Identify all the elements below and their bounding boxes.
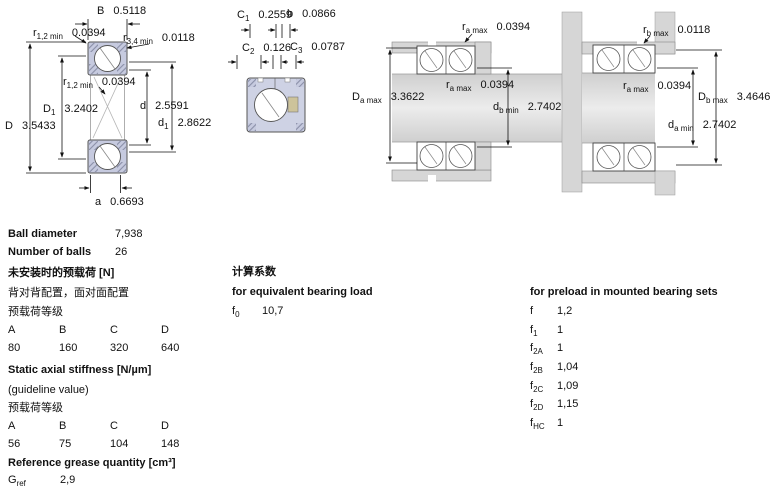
- class-d: D: [161, 420, 212, 433]
- dim-sub: a max: [360, 96, 382, 105]
- dim-val: 2.8622: [178, 117, 212, 129]
- ball-diameter-row: Ball diameter7,938: [8, 228, 143, 241]
- factor-row-f1: f11: [530, 324, 563, 340]
- dim-val: 0.5118: [113, 5, 146, 17]
- class-c: C: [110, 324, 161, 337]
- preload-c: 320: [110, 342, 161, 355]
- dim-val: 0.0394: [102, 76, 136, 88]
- preload-d: 640: [161, 342, 212, 355]
- class-c: C: [110, 420, 161, 433]
- stiffness-d: 148: [161, 438, 212, 451]
- dim-label-C1: C10.2559: [237, 9, 292, 25]
- dim-label-r34: r3,4 min0.0118: [123, 32, 195, 48]
- dim-label-r12-top: r1,2 min0.0394: [33, 27, 106, 43]
- dim-sub: a max: [450, 84, 472, 93]
- dim-sym: d: [140, 100, 146, 112]
- class-a: A: [8, 420, 59, 433]
- dim-val: 0.0118: [677, 24, 710, 36]
- class-b: B: [59, 420, 110, 433]
- dim-sym: C: [242, 42, 250, 54]
- f0-row: f010,7: [232, 305, 283, 321]
- factor-row-f: f1,2: [530, 305, 572, 321]
- dim-val: 3.5433: [22, 120, 56, 132]
- f0-value: 10,7: [262, 305, 283, 317]
- factor-value: 1,09: [557, 380, 578, 392]
- factor-value: 1: [557, 417, 563, 429]
- factor-row-f2A: f2A1: [530, 342, 563, 358]
- factor-row-f2B: f2B1,04: [530, 361, 578, 377]
- dim-val: 0.0787: [311, 41, 345, 53]
- dim-sym: D: [5, 120, 13, 132]
- dim-label-C2: C20.126: [242, 42, 291, 58]
- factor-symbol: f2D: [530, 398, 557, 414]
- equivalent-load-header: for equivalent bearing load: [232, 286, 373, 299]
- factor-symbol: f2A: [530, 342, 557, 358]
- preload-class-header-row: ABCD: [8, 324, 212, 337]
- factor-row-fHC: fHC1: [530, 417, 563, 433]
- factor-value: 1,2: [557, 305, 572, 317]
- grease-header: Reference grease quantity [cm³]: [8, 457, 176, 470]
- dim-sym: C: [290, 41, 298, 53]
- stiffness-note: (guideline value): [8, 384, 89, 397]
- dim-label-d: d2.5591: [140, 100, 189, 116]
- dim-label-r12-inner: r1,2 min0.0394: [63, 76, 136, 92]
- dim-label-ra-max-top: ra max0.0394: [462, 21, 530, 37]
- factor-symbol: f1: [530, 324, 557, 340]
- factor-value: 1: [557, 324, 563, 336]
- dim-label-Da-max: Da max3.3622: [352, 91, 424, 107]
- dim-sub: b max: [706, 96, 728, 105]
- dim-sub: 1,2 min: [67, 81, 93, 90]
- dim-val: 3.3622: [391, 91, 425, 103]
- dim-val: 3.4646: [737, 91, 771, 103]
- dim-sym: a: [95, 196, 101, 208]
- dim-val: 2.5591: [155, 100, 189, 112]
- dim-label-a: a0.6693: [95, 196, 144, 212]
- dim-val: 0.0394: [657, 80, 691, 92]
- number-of-balls-row: Number of balls26: [8, 246, 127, 259]
- dim-sym: D: [43, 103, 51, 115]
- dim-val: 0.0394: [72, 27, 106, 39]
- stiffness-values-row: 5675104148: [8, 438, 212, 451]
- number-of-balls-value: 26: [115, 246, 127, 258]
- dim-val: 0.0394: [496, 21, 530, 33]
- factor-value: 1,15: [557, 398, 578, 410]
- factor-value: 1: [557, 342, 563, 354]
- dim-val: 0.0394: [480, 79, 514, 91]
- factor-value: 1,04: [557, 361, 578, 373]
- dim-sub: a min: [674, 124, 694, 133]
- dim-sym: D: [352, 91, 360, 103]
- dim-label-d1: d12.8622: [158, 117, 211, 133]
- fig2-bearing-face-view: [247, 78, 305, 132]
- dim-sub: a max: [466, 26, 488, 35]
- dim-val: 0.0118: [162, 32, 195, 44]
- bearing-datasheet-page: B0.5118 r1,2 min0.0394 r3,4 min0.0118 r1…: [0, 0, 781, 494]
- stiffness-class-header-row: ABCD: [8, 420, 212, 433]
- ball-diameter-value: 7,938: [115, 228, 143, 240]
- dim-label-C3: C30.0787: [290, 41, 345, 57]
- factor-row-f2C: f2C1,09: [530, 380, 578, 396]
- dim-val: 2.7402: [703, 119, 737, 131]
- grease-row: Gref2,9: [8, 474, 75, 490]
- class-b: B: [59, 324, 110, 337]
- grease-symbol: Gref: [8, 474, 60, 490]
- factor-row-f2D: f2D1,15: [530, 398, 578, 414]
- class-a: A: [8, 324, 59, 337]
- factor-symbol: f: [530, 305, 557, 321]
- preload-class-label: 预载荷等级: [8, 306, 63, 319]
- preload-unmounted-header: 未安装时的预载荷 [N]: [8, 267, 114, 280]
- dim-sym: D: [698, 91, 706, 103]
- stiffness-a: 56: [8, 438, 59, 451]
- dim-label-Db-max: Db max3.4646: [698, 91, 770, 107]
- dim-sub: a max: [627, 85, 649, 94]
- stiffness-b: 75: [59, 438, 110, 451]
- dim-label-B: B0.5118: [97, 5, 146, 21]
- preload-b: 160: [59, 342, 110, 355]
- preload-sets-header: for preload in mounted bearing sets: [530, 286, 718, 299]
- dim-sym: C: [237, 9, 245, 21]
- dim-sub: 3: [298, 46, 302, 55]
- number-of-balls-label: Number of balls: [8, 246, 115, 259]
- dim-sub: 2: [250, 47, 254, 56]
- f0-symbol: f0: [232, 305, 262, 321]
- dim-label-rb-max: rb max0.0118: [643, 24, 710, 40]
- dim-label-ra-max-fig4: ra max0.0394: [623, 80, 691, 96]
- dim-sub: 1,2 min: [37, 32, 63, 41]
- calc-factors-header: 计算系数: [232, 266, 276, 279]
- dim-sub: 1: [51, 108, 55, 117]
- dim-label-da-min: da min2.7402: [668, 119, 736, 135]
- preload-values-row: 80160320640: [8, 342, 212, 355]
- dim-sym: b: [287, 8, 293, 20]
- class-d: D: [161, 324, 212, 337]
- stiffness-class-label: 预载荷等级: [8, 402, 63, 415]
- stiffness-c: 104: [110, 438, 161, 451]
- dim-sub: b min: [499, 106, 519, 115]
- dim-label-D1: D13.2402: [43, 103, 98, 119]
- factor-symbol: f2B: [530, 361, 557, 377]
- dim-label-D: D3.5433: [5, 120, 56, 136]
- factor-symbol: fHC: [530, 417, 557, 433]
- dim-val: 0.126: [263, 42, 291, 54]
- dim-sub: 1: [164, 122, 168, 131]
- dim-val: 3.2402: [64, 103, 98, 115]
- grease-value: 2,9: [60, 474, 75, 486]
- ball-diameter-label: Ball diameter: [8, 228, 115, 241]
- dim-label-db-min: db min2.7402: [493, 101, 561, 117]
- dim-label-ra-max-mid: ra max0.0394: [446, 79, 514, 95]
- dim-val: 0.0866: [302, 8, 336, 20]
- dim-sub: 1: [245, 14, 249, 23]
- preload-a: 80: [8, 342, 59, 355]
- dim-sub: b max: [647, 29, 669, 38]
- factor-symbol: f2C: [530, 380, 557, 396]
- dim-sub: 3,4 min: [127, 37, 153, 46]
- stiffness-header: Static axial stiffness [N/µm]: [8, 364, 151, 377]
- dim-val: 0.6693: [110, 196, 144, 208]
- dim-val: 2.7402: [528, 101, 562, 113]
- dim-label-b: b0.0866: [287, 8, 336, 24]
- dim-sym: B: [97, 5, 104, 17]
- arrangement-note: 背对背配置，面对面配置: [8, 287, 129, 300]
